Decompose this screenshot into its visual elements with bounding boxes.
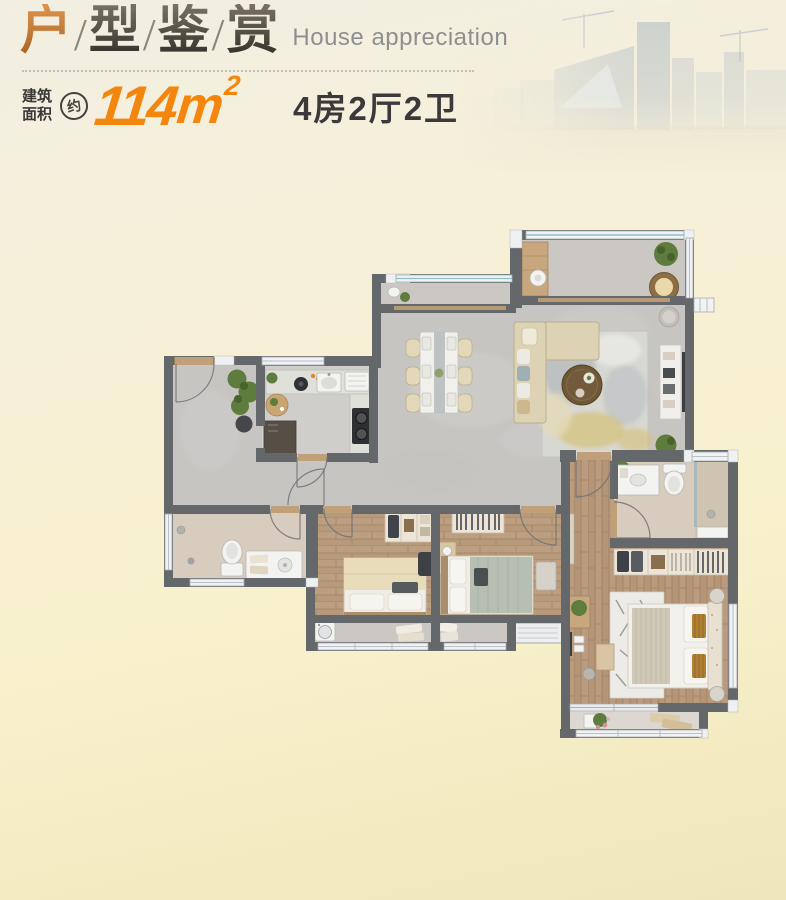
shower-tray xyxy=(697,527,728,538)
window xyxy=(444,643,506,650)
title-separator: / xyxy=(212,12,225,58)
pouf xyxy=(236,416,253,433)
hanging-jacket xyxy=(388,515,399,538)
area-number: 114 xyxy=(92,80,178,132)
header: 户 / 型 / 鉴 / 赏 House appreciation 建筑 面积 约… xyxy=(0,0,786,140)
centerpiece xyxy=(435,369,444,378)
window xyxy=(729,604,737,688)
headboard xyxy=(708,602,722,690)
window xyxy=(686,238,693,298)
tv-unit xyxy=(660,345,686,419)
window xyxy=(165,514,172,570)
area-label: 建筑 面积 xyxy=(22,88,52,124)
hanging-jacket xyxy=(617,551,629,572)
subtitle-english: House appreciation xyxy=(292,24,508,52)
corridor-floor xyxy=(568,460,614,552)
bed-b xyxy=(441,556,533,614)
cabinet-plant xyxy=(571,600,587,616)
area-label-line1: 建筑 xyxy=(22,88,52,106)
potted-plant xyxy=(654,242,678,266)
page-title: 户 / 型 / 鉴 / 赏 House appreciation xyxy=(20,4,508,60)
balcony-cabinet xyxy=(522,242,548,296)
area-info: 建筑 面积 约 114 m 2 xyxy=(22,80,238,132)
shower-head xyxy=(188,558,195,565)
shower-zone xyxy=(695,461,729,538)
window xyxy=(526,231,684,239)
title-char-2: 型 xyxy=(89,4,141,60)
desk-lamp xyxy=(443,547,452,556)
area-value: 114 m 2 xyxy=(92,80,241,132)
shower-drain xyxy=(707,510,715,518)
page: { "header": { "title_chars": ["户", "型", … xyxy=(0,0,786,900)
sliding-door xyxy=(570,704,658,711)
bed-a xyxy=(344,558,426,617)
basket xyxy=(651,555,665,569)
vanity-tub xyxy=(246,551,302,579)
master-bed xyxy=(628,602,722,690)
coffee-table xyxy=(562,365,602,405)
window xyxy=(396,275,512,282)
window xyxy=(692,452,728,461)
title-char-1: 户 xyxy=(20,4,72,60)
title-char-4: 赏 xyxy=(226,4,278,60)
utility-sink xyxy=(388,287,400,297)
small-plant xyxy=(400,292,410,302)
dining-set xyxy=(406,332,472,413)
title-separator: / xyxy=(74,12,87,58)
stool xyxy=(583,668,595,680)
bay-window xyxy=(694,298,714,312)
ac-platform xyxy=(514,623,562,643)
floor-drain xyxy=(177,526,185,534)
entry-threshold xyxy=(174,357,214,365)
window xyxy=(318,643,428,650)
bench xyxy=(536,562,556,590)
master-wardrobe xyxy=(614,549,730,575)
room-layout-text: 4房2厅2卫 xyxy=(293,82,459,130)
dotted-divider xyxy=(22,70,474,72)
area-label-line2: 面积 xyxy=(22,106,52,124)
nightstand xyxy=(710,687,725,702)
shower-glass xyxy=(694,461,697,527)
nightstand xyxy=(710,589,725,604)
area-unit: m xyxy=(175,80,227,132)
basket xyxy=(404,519,414,532)
title-char-3: 鉴 xyxy=(158,4,210,60)
wardrobe-a xyxy=(385,512,433,542)
approx-badge: 约 xyxy=(58,90,90,122)
toilet-icon xyxy=(221,540,243,576)
window xyxy=(262,357,324,365)
window xyxy=(190,579,244,586)
floorplan xyxy=(160,226,744,746)
desk xyxy=(596,644,614,670)
area-exponent: 2 xyxy=(223,72,242,100)
washing-machine-icon xyxy=(315,622,335,641)
kitchen-cabinet xyxy=(264,421,296,455)
breakfast-table xyxy=(266,394,288,416)
title-separator: / xyxy=(143,12,156,58)
window xyxy=(576,730,702,737)
